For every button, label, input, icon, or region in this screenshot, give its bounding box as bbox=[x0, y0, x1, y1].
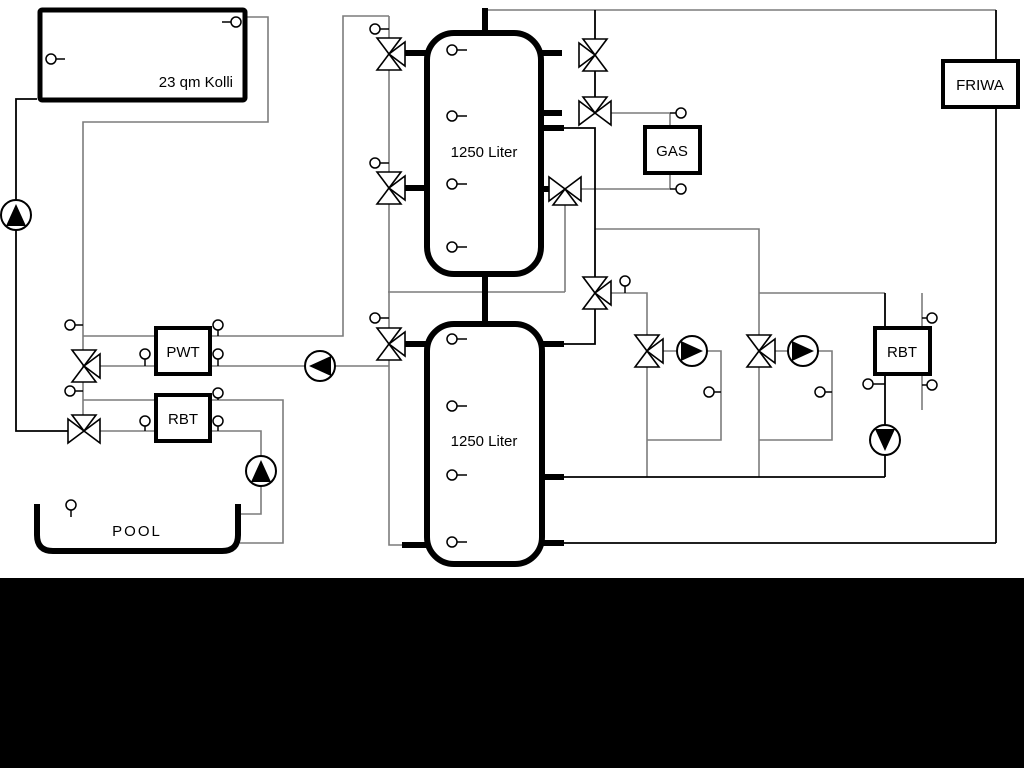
lower-tank-label: 1250 Liter bbox=[451, 433, 518, 450]
sensor-solar-supply[interactable] bbox=[65, 320, 83, 330]
sensor-rbt-bottom-left[interactable] bbox=[140, 416, 150, 431]
valve-solar-pwt[interactable] bbox=[72, 350, 100, 382]
valve-tank1-top-left[interactable] bbox=[377, 38, 405, 70]
valve-gas-flow[interactable] bbox=[579, 97, 611, 125]
rbt-right-label: RBT bbox=[887, 344, 917, 361]
sensor-pwt-top-right[interactable] bbox=[213, 320, 223, 336]
sensor-circuit2-return[interactable] bbox=[815, 387, 832, 397]
upper-tank-label: 1250 Liter bbox=[451, 144, 518, 161]
pwt-label: PWT bbox=[166, 344, 199, 361]
pump-heating-circuit-2[interactable] bbox=[788, 336, 818, 366]
sensor-pwt-bottom-left[interactable] bbox=[140, 349, 150, 366]
pipe-heating-header-lower bbox=[611, 293, 647, 477]
valve-tank2-top-left[interactable] bbox=[377, 328, 405, 360]
rbt-left-label: RBT bbox=[168, 411, 198, 428]
pipe-tank-left-column bbox=[389, 16, 406, 545]
pipe-tank1-right-down bbox=[564, 128, 595, 344]
collector-label: 23 qm Kolli bbox=[159, 74, 233, 91]
pipe-solar-cold bbox=[16, 99, 68, 431]
gas-boiler[interactable]: GAS bbox=[645, 127, 700, 173]
valve-solar-pool[interactable] bbox=[68, 415, 100, 443]
valve-heating-header[interactable] bbox=[583, 277, 611, 309]
pump-pwt[interactable] bbox=[305, 351, 335, 381]
pump-solar[interactable] bbox=[1, 200, 31, 230]
valve-heating-circuit-2[interactable] bbox=[747, 335, 775, 367]
sensor-rbt-right-return[interactable] bbox=[863, 379, 885, 389]
pump-rbt-right[interactable] bbox=[870, 425, 900, 455]
sensor-circuit1-return[interactable] bbox=[704, 387, 721, 397]
sensor-pwt-bottom-right[interactable] bbox=[213, 349, 223, 366]
sensor-tank-column-low[interactable] bbox=[370, 313, 389, 323]
sensor-gas-flow[interactable] bbox=[670, 108, 686, 118]
sensor-gas-return[interactable] bbox=[670, 184, 686, 194]
pool-sensor[interactable] bbox=[66, 500, 76, 517]
pipe-pool-supply bbox=[100, 431, 261, 514]
valve-gas-return[interactable] bbox=[549, 177, 581, 205]
sensor-riser-bottom[interactable] bbox=[922, 380, 937, 390]
pool-label: POOL bbox=[112, 523, 162, 540]
sensor-tank-column-top[interactable] bbox=[370, 24, 389, 34]
sensor-solar-return[interactable] bbox=[65, 386, 83, 396]
gas-label: GAS bbox=[656, 143, 688, 160]
pwt-heat-exchanger[interactable]: PWT bbox=[156, 328, 210, 374]
friwa-label: FRIWA bbox=[956, 77, 1004, 94]
pipe-gas-flow bbox=[581, 113, 670, 127]
friwa-station[interactable]: FRIWA bbox=[943, 61, 1018, 107]
schematic-page: 23 qm Kolli 1250 Liter 1250 Liter POOL P… bbox=[0, 0, 1024, 768]
sensor-tank-column-mid[interactable] bbox=[370, 158, 389, 168]
sensor-rbt-bottom-right[interactable] bbox=[213, 416, 223, 431]
valve-tank1-top-right[interactable] bbox=[579, 39, 607, 71]
rbt-heating-heat-exchanger[interactable]: RBT bbox=[875, 328, 930, 374]
sensor-rbt-top-right[interactable] bbox=[213, 388, 223, 400]
pump-heating-circuit-1[interactable] bbox=[677, 336, 707, 366]
buffer-tank-upper[interactable]: 1250 Liter bbox=[427, 33, 541, 274]
pump-pool[interactable] bbox=[246, 456, 276, 486]
buffer-tank-lower[interactable]: 1250 Liter bbox=[427, 324, 542, 564]
footer-bar bbox=[0, 578, 1024, 768]
solar-collector[interactable]: 23 qm Kolli bbox=[40, 10, 245, 100]
valve-tank1-mid-left[interactable] bbox=[377, 172, 405, 204]
sensor-riser-top[interactable] bbox=[922, 313, 937, 323]
pool-basin[interactable]: POOL bbox=[37, 500, 238, 551]
rbt-pool-heat-exchanger[interactable]: RBT bbox=[156, 395, 210, 441]
sensor-heating-header[interactable] bbox=[620, 276, 630, 293]
valve-heating-circuit-1[interactable] bbox=[635, 335, 663, 367]
